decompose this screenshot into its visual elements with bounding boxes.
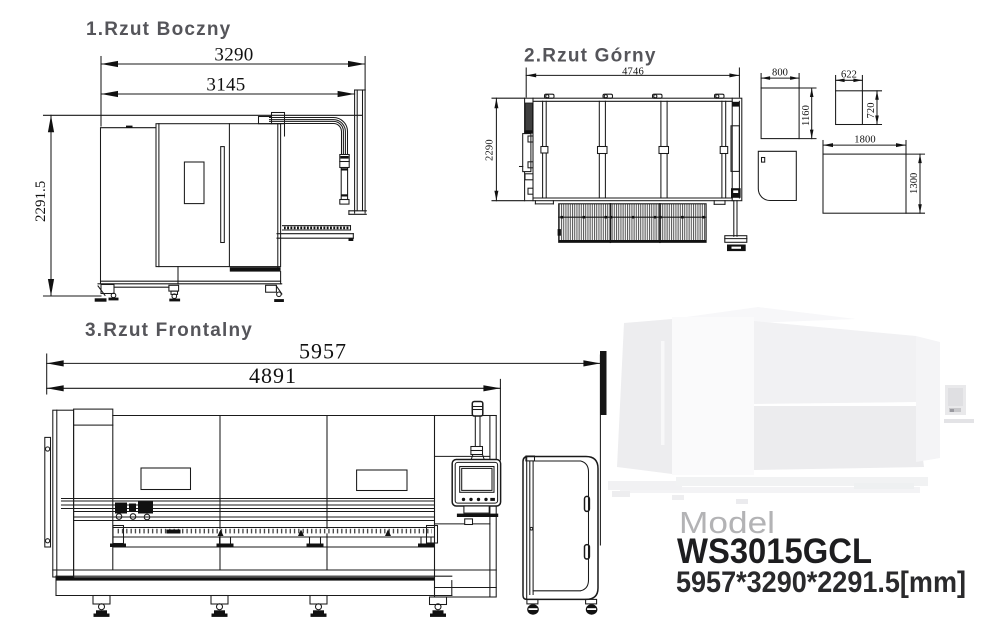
svg-text:622: 622 <box>841 70 857 81</box>
svg-text:4891: 4891 <box>249 363 297 388</box>
svg-text:1160: 1160 <box>801 105 812 126</box>
svg-text:1.Rzut Boczny: 1.Rzut Boczny <box>86 19 231 40</box>
svg-text:5957: 5957 <box>299 338 347 363</box>
svg-text:3290: 3290 <box>214 45 253 66</box>
svg-text:2.Rzut Górny: 2.Rzut Górny <box>524 46 657 67</box>
svg-text:2291.5: 2291.5 <box>33 181 49 222</box>
svg-text:5957*3290*2291.5[mm]: 5957*3290*2291.5[mm] <box>676 566 966 599</box>
svg-text:4746: 4746 <box>622 67 644 78</box>
svg-text:3145: 3145 <box>206 75 245 96</box>
svg-text:3.Rzut Frontalny: 3.Rzut Frontalny <box>85 320 253 341</box>
svg-text:1300: 1300 <box>909 173 920 194</box>
svg-text:2290: 2290 <box>485 139 496 161</box>
svg-text:1800: 1800 <box>854 135 875 146</box>
svg-text:800: 800 <box>772 68 788 79</box>
svg-text:720: 720 <box>866 102 877 118</box>
